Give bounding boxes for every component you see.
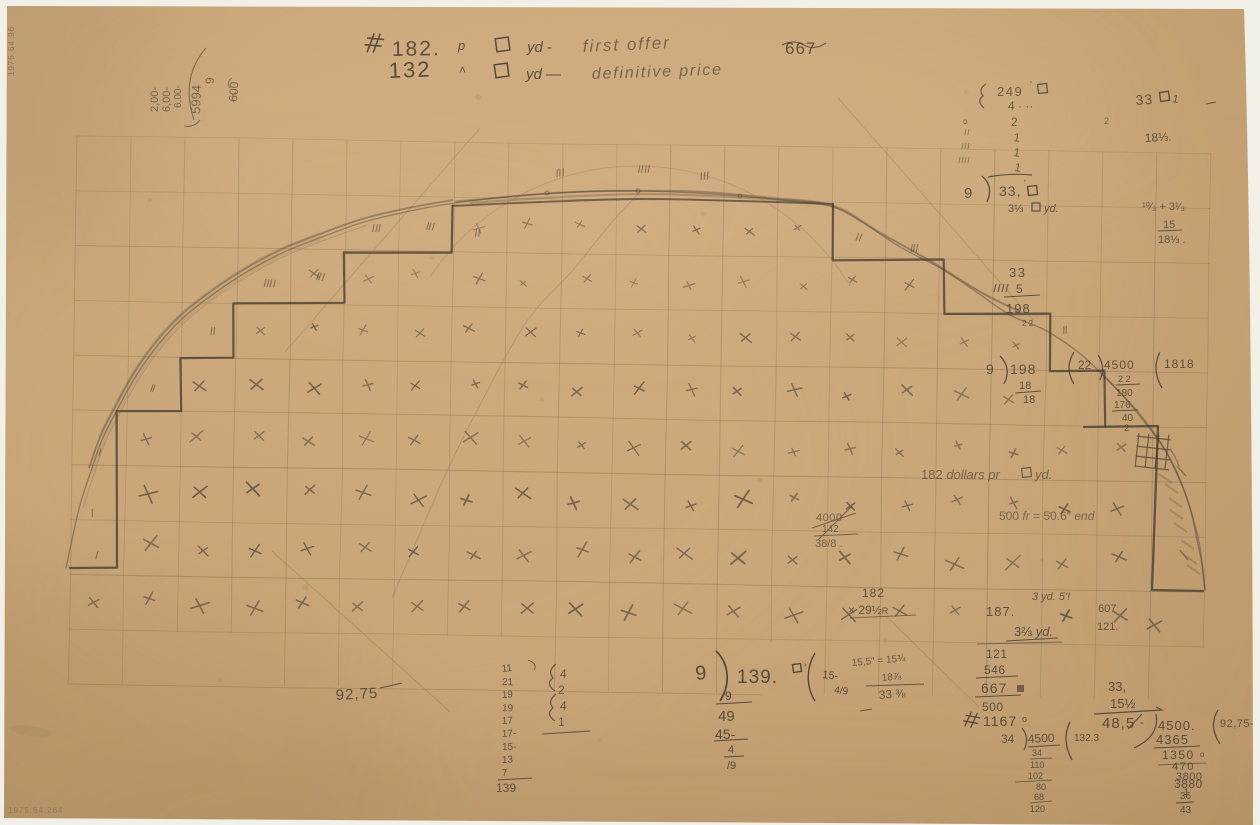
svg-text:500: 500 <box>982 700 1004 714</box>
svg-text:1: 1 <box>558 715 565 729</box>
svg-text:2: 2 <box>1104 116 1109 126</box>
svg-text:4500.: 4500. <box>1158 718 1196 733</box>
svg-text:4500: 4500 <box>1104 358 1135 372</box>
svg-text:139: 139 <box>496 781 516 795</box>
svg-text:4 · ··: 4 · ·· <box>1008 99 1033 113</box>
svg-text:18: 18 <box>1023 394 1035 406</box>
svg-text:5: 5 <box>1016 282 1023 296</box>
svg-text:110: 110 <box>1030 760 1044 770</box>
svg-text:15-: 15- <box>502 742 516 753</box>
svg-text:': ' <box>1024 178 1026 188</box>
svg-text:121: 121 <box>986 647 1008 661</box>
svg-text:15: 15 <box>1163 219 1175 231</box>
svg-text:4365: 4365 <box>1156 732 1189 747</box>
svg-text:33,: 33, <box>1108 679 1126 694</box>
svg-text:11: 11 <box>501 663 513 675</box>
svg-text:1975 64 96: 1975 64 96 <box>7 26 16 76</box>
svg-text:17-: 17- <box>502 728 517 740</box>
svg-text:19: 19 <box>502 703 514 714</box>
svg-text:33 ⅜: 33 ⅜ <box>878 686 907 702</box>
svg-text:/9: /9 <box>727 760 736 772</box>
svg-text:187.: 187. <box>986 604 1015 619</box>
svg-text:9: 9 <box>964 185 972 202</box>
svg-text:5̂00 fr = 5̂0.6″ end: 5̂00 fr = 5̂0.6″ end <box>999 509 1095 523</box>
svg-text:92,75: 92,75 <box>335 685 378 704</box>
svg-text:139.: 139. <box>737 667 778 688</box>
svg-text:9: 9 <box>694 662 707 685</box>
svg-text:2 2: 2 2 <box>1022 319 1034 328</box>
svg-text:198: 198 <box>1010 361 1036 377</box>
svg-text:18⅓.: 18⅓. <box>1144 130 1171 145</box>
svg-text:˄: ˄ <box>459 63 466 77</box>
svg-text:p: p <box>457 38 465 53</box>
svg-text:19: 19 <box>501 689 513 701</box>
svg-text:667: 667 <box>981 680 1007 696</box>
svg-text:4: 4 <box>728 744 734 756</box>
svg-text:1: 1 <box>1184 787 1189 797</box>
svg-text:9: 9 <box>203 77 217 84</box>
svg-text:3 yd. 5'!: 3 yd. 5'! <box>1032 591 1070 603</box>
svg-text:182: 182 <box>862 586 885 600</box>
svg-text:6,00-: 6,00- <box>161 87 173 112</box>
svg-text:120: 120 <box>1030 804 1045 814</box>
svg-text:2,00-: 2,00- <box>149 87 161 112</box>
svg-text:5994: 5994 <box>188 85 204 114</box>
svg-text:4/9: 4/9 <box>834 685 849 697</box>
svg-text:yd.: yd. <box>1034 467 1052 482</box>
svg-text:6,00-: 6,00- <box>173 85 184 108</box>
svg-text:121.: 121. <box>1097 621 1118 633</box>
svg-text:80: 80 <box>1036 782 1046 792</box>
svg-text:1350: 1350 <box>1162 748 1195 762</box>
svg-text:o: o <box>1200 750 1205 759</box>
svg-text:first offer: first offer <box>582 33 671 56</box>
svg-text:17: 17 <box>502 715 514 727</box>
svg-text:34: 34 <box>1032 748 1042 758</box>
svg-text:o: o <box>1022 714 1027 724</box>
svg-text:13: 13 <box>502 755 514 766</box>
svg-text:132.3: 132.3 <box>1074 733 1099 744</box>
svg-text:18⅞: 18⅞ <box>881 671 902 684</box>
svg-text:102: 102 <box>1028 771 1043 781</box>
svg-text:o: o <box>963 117 968 126</box>
svg-text:18: 18 <box>1019 380 1031 392</box>
svg-text:9: 9 <box>725 689 732 703</box>
svg-text:× 29½R: × 29½R <box>848 603 889 617</box>
svg-text:198: 198 <box>1006 301 1031 316</box>
svg-text:48,5: 48,5 <box>1102 715 1135 732</box>
svg-text:180: 180 <box>1116 388 1133 399</box>
svg-text:22: 22 <box>1078 358 1092 372</box>
svg-text:33,: 33, <box>999 183 1021 199</box>
svg-text:4500: 4500 <box>1027 731 1055 746</box>
svg-text:¹⁰⁄₃ + 3¹⁄₃: ¹⁰⁄₃ + 3¹⁄₃ <box>1142 201 1185 213</box>
svg-text:68: 68 <box>1034 792 1044 802</box>
svg-text:-: - <box>1140 715 1144 729</box>
svg-text:7: 7 <box>502 768 509 779</box>
svg-text:132: 132 <box>388 57 432 83</box>
svg-text:49: 49 <box>718 708 735 725</box>
svg-text:2: 2 <box>558 683 565 697</box>
svg-text:38/8 .: 38/8 . <box>815 538 843 550</box>
svg-text:15-: 15- <box>822 669 839 683</box>
svg-text:249: 249 <box>997 84 1023 99</box>
svg-text:2: 2 <box>1011 115 1018 129</box>
svg-text:1818: 1818 <box>1164 357 1195 371</box>
svg-text:': ' <box>804 661 806 675</box>
svg-text:1975.64.264: 1975.64.264 <box>8 806 64 815</box>
svg-text:21: 21 <box>502 677 514 688</box>
svg-text:yd —: yd — <box>525 66 561 83</box>
svg-text:4: 4 <box>560 699 567 713</box>
svg-text:3⅓: 3⅓ <box>1008 203 1023 215</box>
svg-text:43: 43 <box>1180 805 1192 816</box>
svg-text:2 2: 2 2 <box>1118 374 1131 384</box>
svg-text:yd.: yd. <box>1043 203 1059 215</box>
svg-text:18⅓ .: 18⅓ . <box>1158 234 1186 246</box>
svg-text:4: 4 <box>560 667 567 681</box>
svg-text:1167: 1167 <box>983 713 1017 729</box>
svg-text:34: 34 <box>1001 732 1015 746</box>
svg-text:182 dollars pr: 182 dollars pr <box>921 467 1000 482</box>
svg-text:546: 546 <box>984 663 1006 677</box>
svg-text:607: 607 <box>1098 603 1116 615</box>
svg-text:33: 33 <box>1135 91 1154 108</box>
svg-text:': ' <box>1030 80 1032 91</box>
svg-text:15½: 15½ <box>1110 696 1135 711</box>
svg-text:yd -: yd - <box>526 39 552 56</box>
svg-text:3⅔ yd.: 3⅔ yd. <box>1014 624 1053 639</box>
svg-text:2: 2 <box>1124 423 1129 433</box>
svg-text:176: 176 <box>1114 400 1131 411</box>
svg-text:33: 33 <box>1009 265 1026 280</box>
svg-text:92,75-: 92,75- <box>1220 718 1254 730</box>
svg-text:9: 9 <box>986 361 994 377</box>
